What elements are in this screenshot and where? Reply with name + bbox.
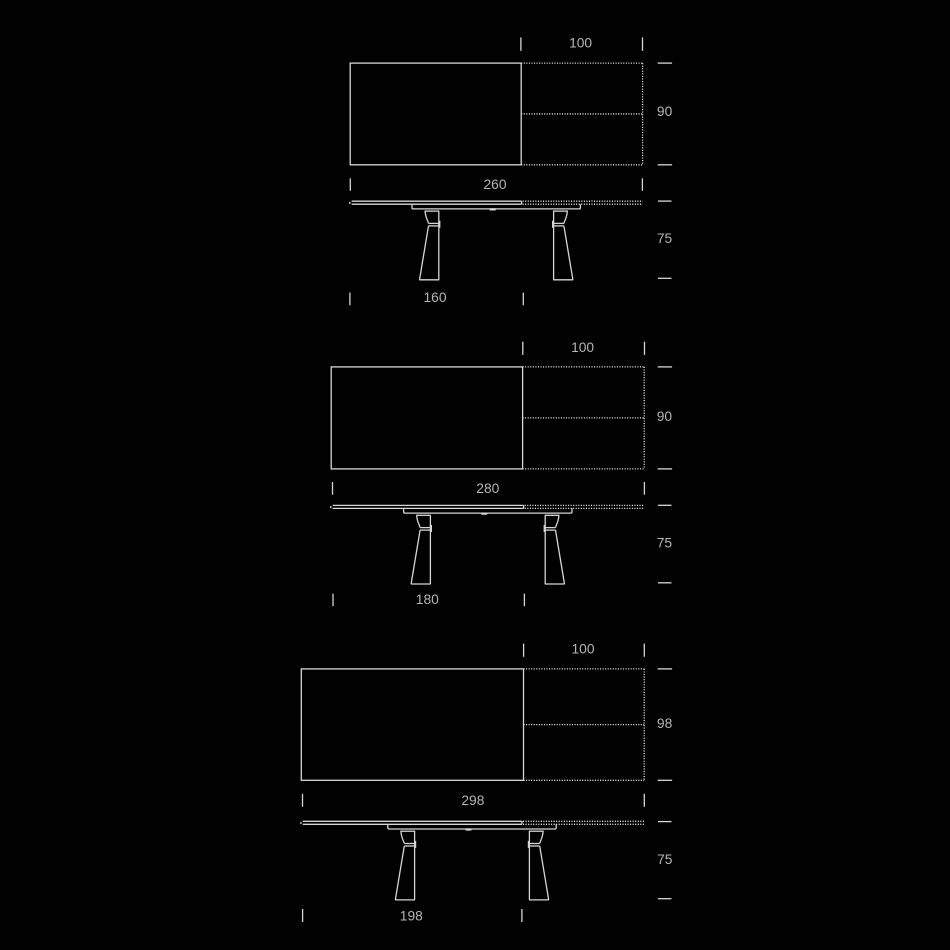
svg-text:90: 90 bbox=[657, 409, 673, 424]
svg-text:100: 100 bbox=[571, 340, 594, 355]
svg-text:260: 260 bbox=[483, 177, 506, 192]
svg-text:180: 180 bbox=[416, 592, 439, 607]
svg-text:75: 75 bbox=[657, 852, 673, 867]
svg-text:280: 280 bbox=[476, 481, 499, 496]
svg-text:198: 198 bbox=[400, 909, 423, 924]
svg-text:90: 90 bbox=[657, 104, 673, 119]
svg-text:100: 100 bbox=[569, 35, 592, 50]
svg-text:75: 75 bbox=[657, 536, 673, 551]
svg-text:160: 160 bbox=[423, 290, 446, 305]
svg-text:98: 98 bbox=[657, 716, 673, 731]
svg-text:75: 75 bbox=[657, 231, 673, 246]
svg-text:298: 298 bbox=[461, 793, 484, 808]
svg-text:100: 100 bbox=[571, 642, 594, 657]
